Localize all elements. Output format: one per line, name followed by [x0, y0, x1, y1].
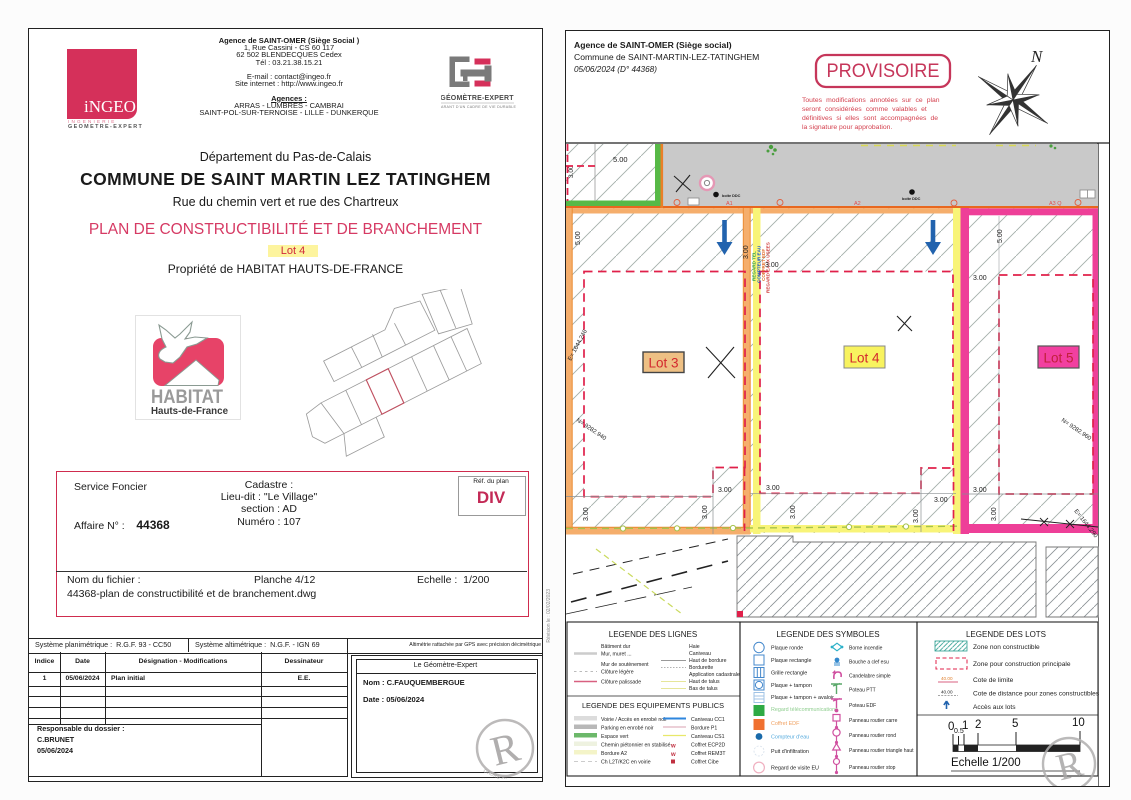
svg-text:Plaque + tampon: Plaque + tampon [771, 683, 812, 689]
svg-text:boite DDC: boite DDC [722, 194, 741, 198]
svg-text:Mur de soutènement: Mur de soutènement [601, 662, 649, 668]
svg-text:3.00: 3.00 [702, 505, 709, 519]
svg-text:N: N [1030, 47, 1044, 66]
svg-text:Borne incendie: Borne incendie [849, 646, 883, 652]
svg-text:Clôture légère: Clôture légère [601, 670, 634, 676]
svg-text:Haut de bordure: Haut de bordure [689, 658, 727, 664]
svg-text:Plaque ronde: Plaque ronde [771, 646, 803, 652]
svg-text:Lot 5: Lot 5 [1043, 351, 1073, 366]
svg-text:Poteau PTT: Poteau PTT [849, 688, 876, 694]
svg-text:Clôture palissade: Clôture palissade [601, 680, 641, 686]
svg-text:1: 1 [962, 720, 968, 732]
svg-text:3.00: 3.00 [743, 245, 750, 259]
svg-text:3.00: 3.00 [973, 487, 987, 494]
svg-text:Caniveau CS1: Caniveau CS1 [691, 734, 725, 740]
svg-text:Accès aux lots: Accès aux lots [973, 704, 1016, 711]
svg-text:40.00: 40.00 [941, 676, 953, 681]
svg-text:Coffret Cibe: Coffret Cibe [691, 760, 719, 766]
svg-text:5: 5 [1012, 718, 1018, 730]
svg-text:GÉOMÈTRE-EXPERT: GÉOMÈTRE-EXPERT [441, 93, 514, 102]
svg-text:Panneau routier stop: Panneau routier stop [849, 765, 896, 771]
svg-text:Espace vert: Espace vert [601, 734, 629, 740]
svg-text:Mur, muret ...: Mur, muret ... [601, 652, 632, 658]
svg-text:Candelabre simple: Candelabre simple [849, 674, 891, 680]
svg-text:LEGENDE DES SYMBOLES: LEGENDE DES SYMBOLES [776, 630, 879, 639]
svg-text:Coffret EDF: Coffret EDF [771, 721, 800, 727]
svg-text:5.00: 5.00 [997, 229, 1004, 243]
svg-text:Toutes modifications annotées: Toutes modifications annotées sur ce pla… [802, 97, 940, 104]
svg-text:Coffret ECP2D: Coffret ECP2D [691, 743, 725, 749]
svg-text:3.00: 3.00 [568, 165, 575, 178]
svg-text:Bas de talus: Bas de talus [689, 686, 718, 692]
svg-text:Hauts-de-France: Hauts-de-France [151, 405, 228, 417]
svg-text:A1: A1 [726, 201, 733, 207]
svg-text:Regard télécommunications: Regard télécommunications [771, 707, 838, 713]
svg-text:2: 2 [975, 719, 981, 731]
svg-text:Panneau routier rond: Panneau routier rond [849, 733, 896, 739]
svg-text:Haie: Haie [689, 644, 700, 650]
svg-text:Grille rectangle: Grille rectangle [771, 671, 807, 677]
svg-text:Bouche a clef esu: Bouche a clef esu [849, 660, 889, 666]
svg-text:3.00: 3.00 [583, 507, 590, 521]
svg-text:Application cadastrale: Application cadastrale [689, 672, 740, 678]
svg-text:PROVISOIRE: PROVISOIRE [827, 60, 940, 82]
svg-text:définitives si elles sont acco: définitives si elles sont accompagnées d… [802, 115, 938, 122]
svg-text:Puit d'infiltration: Puit d'infiltration [771, 749, 809, 755]
svg-text:3.00: 3.00 [766, 485, 780, 492]
svg-text:3.00: 3.00 [934, 497, 948, 504]
svg-text:5.00: 5.00 [575, 231, 582, 245]
svg-text:Zone pour construction princip: Zone pour construction principale [973, 661, 1071, 668]
svg-text:Agence de SAINT-OMER (Siège so: Agence de SAINT-OMER (Siège social) [574, 40, 732, 50]
svg-text:Bâtiment dur: Bâtiment dur [601, 644, 631, 650]
svg-text:Regard de visite EU: Regard de visite EU [771, 766, 819, 772]
svg-text:Bordure P1: Bordure P1 [691, 726, 717, 732]
svg-text:Compteur d'eau: Compteur d'eau [771, 735, 809, 741]
svg-text:Ch L2T/K2C en voirie: Ch L2T/K2C en voirie [601, 760, 651, 766]
svg-text:Voirie / Accès en enrobé noir: Voirie / Accès en enrobé noir [601, 717, 667, 723]
svg-text:Panneau routier carre: Panneau routier carre [849, 718, 898, 724]
svg-text:w: w [670, 752, 676, 758]
svg-text:3.00: 3.00 [718, 487, 732, 494]
svg-text:Cote de limite: Cote de limite [973, 677, 1014, 684]
svg-text:3.00: 3.00 [991, 507, 998, 521]
svg-text:Bordure A2: Bordure A2 [601, 751, 627, 757]
svg-text:05/06/2024 (D° 44368): 05/06/2024 (D° 44368) [574, 65, 657, 74]
svg-text:Parking en enrobé noir: Parking en enrobé noir [601, 726, 654, 732]
svg-text:boite DDC: boite DDC [902, 197, 921, 201]
svg-text:Commune de SAINT-MARTIN-LEZ-TA: Commune de SAINT-MARTIN-LEZ-TATINGHEM [574, 52, 759, 62]
svg-text:Chemin piétonnier en stabilisé: Chemin piétonnier en stabilisé [601, 743, 671, 749]
svg-text:seront considérées comme valab: seront considérées comme valables et [802, 106, 927, 113]
svg-text:Echelle 1/200: Echelle 1/200 [951, 757, 1021, 769]
svg-text:la signature pour approbation.: la signature pour approbation. [802, 124, 892, 131]
svg-text:LEGENDE DES LIGNES: LEGENDE DES LIGNES [609, 630, 697, 639]
svg-text:Plaque + tampon + avaloir: Plaque + tampon + avaloir [771, 695, 834, 701]
svg-text:5.00: 5.00 [613, 155, 628, 164]
svg-text:Haut de talus: Haut de talus [689, 679, 720, 685]
svg-text:40.00: 40.00 [941, 690, 953, 695]
svg-text:A2: A2 [854, 201, 861, 207]
svg-text:GARANT D'UN CADRE DE VIE DURAB: GARANT D'UN CADRE DE VIE DURABLE [441, 105, 516, 109]
svg-text:LEGENDE DES LOTS: LEGENDE DES LOTS [966, 630, 1046, 639]
svg-text:3.00: 3.00 [973, 275, 987, 282]
svg-text:Bordurette: Bordurette [689, 665, 713, 671]
svg-text:Lot 4: Lot 4 [849, 351, 880, 366]
svg-text:Zone non constructible: Zone non constructible [973, 644, 1040, 651]
svg-text:Caniveau CC1: Caniveau CC1 [691, 717, 725, 723]
svg-text:Coffret REM3T: Coffret REM3T [691, 751, 726, 757]
svg-text:3.00: 3.00 [765, 262, 779, 269]
svg-text:3.00: 3.00 [790, 505, 797, 519]
svg-text:A3 Q: A3 Q [1049, 201, 1062, 207]
svg-text:3.00: 3.00 [913, 509, 920, 523]
svg-text:w: w [670, 744, 676, 750]
svg-text:Caniveau: Caniveau [689, 651, 711, 657]
svg-text:LEGENDE DES EQUIPEMENTS PUBLIC: LEGENDE DES EQUIPEMENTS PUBLICS [582, 701, 724, 710]
svg-text:Cote de distance pour zones co: Cote de distance pour zones constructibl… [973, 691, 1100, 698]
svg-text:Panneau routier triangle haut: Panneau routier triangle haut [849, 748, 914, 754]
svg-text:Lot 3: Lot 3 [648, 356, 678, 371]
svg-text:Poteau EDF: Poteau EDF [849, 703, 876, 709]
svg-text:R: R [486, 724, 524, 775]
svg-text:10: 10 [1072, 717, 1085, 729]
svg-text:Plaque rectangle: Plaque rectangle [771, 658, 811, 664]
